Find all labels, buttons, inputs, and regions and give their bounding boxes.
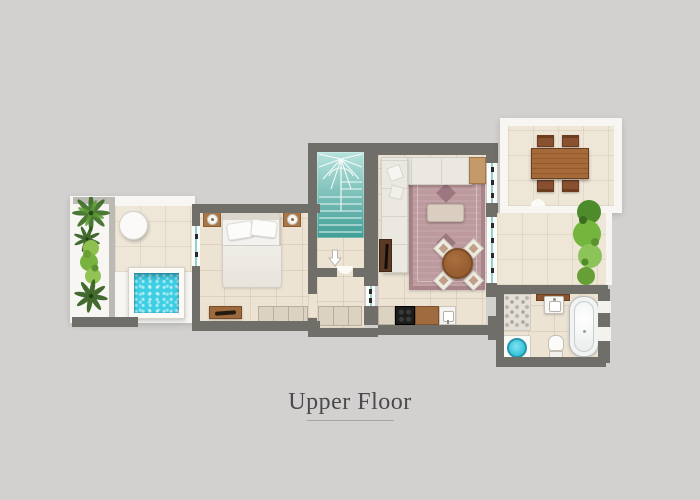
nightstand-with-lamp — [203, 212, 221, 227]
plunge-pool — [128, 267, 185, 319]
wall — [496, 357, 606, 367]
pool-water — [134, 273, 179, 313]
bench-decor — [215, 310, 236, 315]
tv-icon — [384, 244, 388, 269]
bathtub — [569, 296, 599, 357]
outdoor-chair — [537, 135, 554, 147]
glass-wall — [487, 162, 497, 203]
wall — [72, 317, 138, 327]
outdoor-dining-table — [531, 148, 589, 179]
wall-niche — [598, 301, 611, 313]
blanket — [222, 245, 282, 288]
floor-plan: Upper Floor — [0, 0, 700, 500]
wall — [192, 204, 200, 330]
wall — [192, 204, 320, 213]
wall — [488, 316, 496, 340]
title-underline — [307, 420, 394, 421]
vanity-sink — [544, 296, 564, 314]
garden-shrubs-icon — [573, 200, 605, 288]
window — [192, 226, 200, 266]
basin-water — [507, 338, 527, 358]
outdoor-chair — [562, 180, 579, 192]
toilet — [548, 335, 564, 351]
palm-tree-icon — [74, 276, 108, 320]
wall — [317, 268, 337, 277]
lamp-icon — [207, 214, 218, 225]
kitchen-sink — [439, 306, 456, 325]
tub-basin — [574, 301, 594, 352]
round-dining-table — [442, 248, 473, 279]
headboard — [223, 213, 279, 220]
pebble-shower-floor — [503, 294, 531, 331]
drain-icon — [583, 330, 586, 333]
wall — [364, 306, 378, 325]
foot-bench — [209, 306, 242, 319]
entry-arrow-icon — [328, 249, 342, 267]
wall — [364, 143, 486, 155]
round-patio-table — [119, 211, 148, 240]
tv-console — [379, 239, 392, 272]
outdoor-chair — [537, 180, 554, 192]
wall-niche — [598, 327, 611, 341]
outdoor-chair — [562, 135, 579, 147]
wall — [486, 143, 498, 163]
floor-plan-title: Upper Floor — [288, 389, 411, 416]
terrace-edge — [606, 213, 612, 285]
side-table — [469, 157, 486, 184]
door-arc — [531, 199, 545, 206]
wall — [192, 321, 320, 331]
faucet-icon — [447, 320, 449, 324]
glass-wall — [487, 217, 497, 283]
faucet-icon — [553, 298, 556, 301]
kitchen-counter-wood — [415, 306, 439, 325]
wall — [378, 325, 500, 335]
double-bed — [222, 212, 280, 286]
wall — [364, 143, 378, 286]
nightstand-with-lamp — [283, 212, 301, 227]
ottoman-coffee-table — [427, 204, 464, 222]
built-in-wardrobe — [318, 306, 362, 326]
sink-basin — [549, 301, 561, 312]
winder-staircase — [317, 152, 364, 238]
kitchen-counter — [378, 306, 395, 325]
lamp-icon — [287, 214, 298, 225]
glass-door — [366, 286, 375, 306]
wall — [496, 285, 504, 365]
bedroom-door-gap — [308, 294, 317, 318]
wall — [496, 285, 608, 294]
pillow — [250, 218, 278, 238]
wall — [353, 268, 364, 277]
cooktop — [395, 306, 415, 325]
wall — [308, 328, 378, 337]
